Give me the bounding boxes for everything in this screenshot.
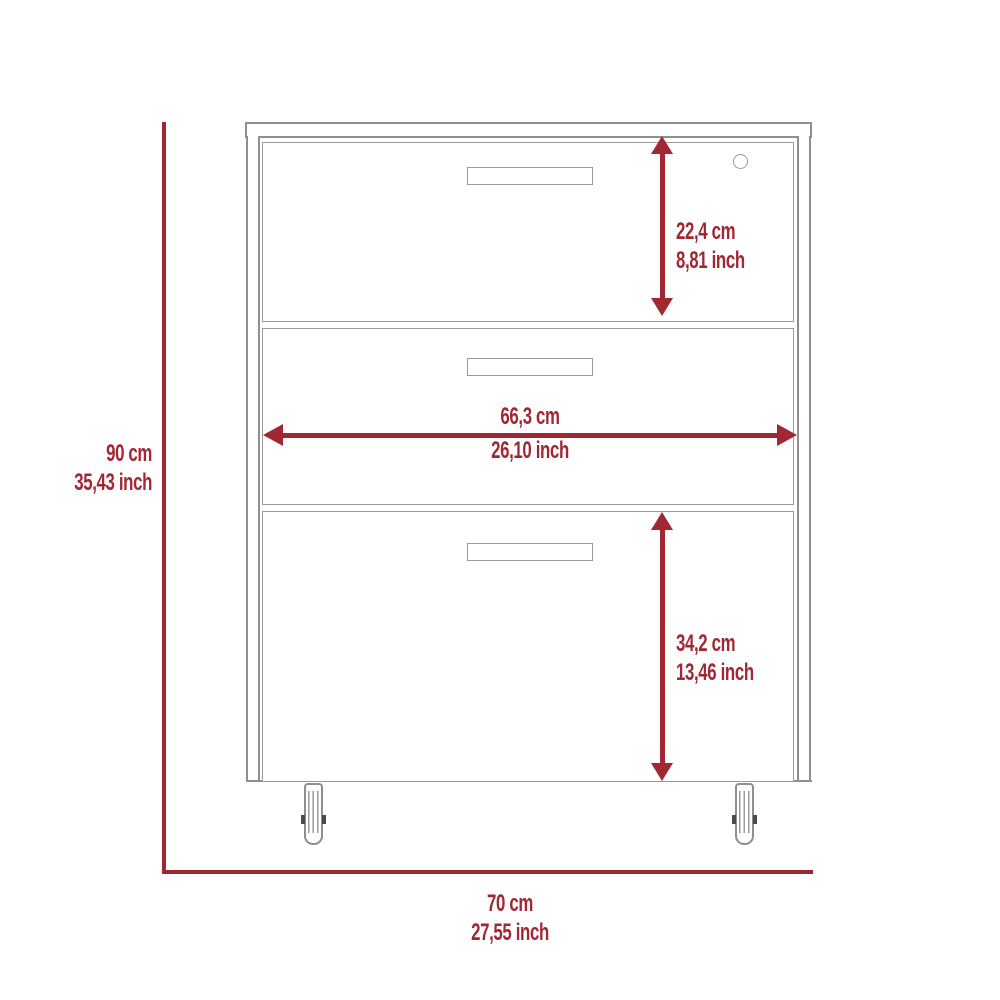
arrowhead-down-icon xyxy=(651,763,673,781)
cam-lock-hole xyxy=(733,154,748,169)
bottom-drawer-height-cm: 34,2 cm xyxy=(676,629,754,658)
arrowhead-right-icon xyxy=(777,424,797,446)
overall-height-cm: 90 cm xyxy=(67,439,152,468)
wheel-axle-cap-left xyxy=(301,815,305,824)
overall-height-inch: 35,43 inch xyxy=(67,468,152,497)
drawer-bottom-handle xyxy=(467,543,593,561)
overall-height-label: 90 cm 35,43 inch xyxy=(67,439,152,497)
wheel-axle-cap-right xyxy=(753,815,757,824)
bottom-drawer-height-label: 34,2 cm 13,46 inch xyxy=(676,629,754,687)
cabinet-top-panel xyxy=(245,122,812,138)
wheel-axle-cap-left xyxy=(732,815,736,824)
wheel-tread xyxy=(739,791,750,833)
furniture-dimension-diagram: 90 cm 35,43 inch 70 cm 27,55 inch 22,4 c… xyxy=(0,0,1000,1000)
bottom-drawer-height-inch: 13,46 inch xyxy=(676,658,754,687)
arrow-shaft xyxy=(660,151,665,300)
arrowhead-down-icon xyxy=(651,298,673,316)
cabinet-right-side-panel xyxy=(797,136,811,782)
cabinet-left-side-panel xyxy=(246,136,260,782)
caster-wheel-right xyxy=(735,783,754,845)
caster-wheel-left xyxy=(304,783,323,845)
drawer-top-handle xyxy=(467,167,593,185)
overall-width-inch: 27,55 inch xyxy=(374,918,647,947)
inner-width-label-cm: 66,3 cm xyxy=(394,402,667,431)
overall-width-dimension-line xyxy=(162,870,813,874)
wheel-tread xyxy=(308,791,319,833)
drawer-middle-handle xyxy=(467,358,593,376)
overall-width-label: 70 cm 27,55 inch xyxy=(374,889,647,947)
overall-width-cm: 70 cm xyxy=(374,889,647,918)
top-drawer-height-cm: 22,4 cm xyxy=(676,217,745,246)
overall-height-dimension-line xyxy=(162,122,166,874)
inner-width-inch: 26,10 inch xyxy=(394,436,667,465)
inner-width-cm: 66,3 cm xyxy=(394,402,667,431)
wheel-axle-cap-right xyxy=(322,815,326,824)
top-drawer-height-label: 22,4 cm 8,81 inch xyxy=(676,217,745,275)
inner-width-label-inch: 26,10 inch xyxy=(394,436,667,465)
arrow-shaft xyxy=(660,527,665,765)
top-drawer-height-inch: 8,81 inch xyxy=(676,246,745,275)
